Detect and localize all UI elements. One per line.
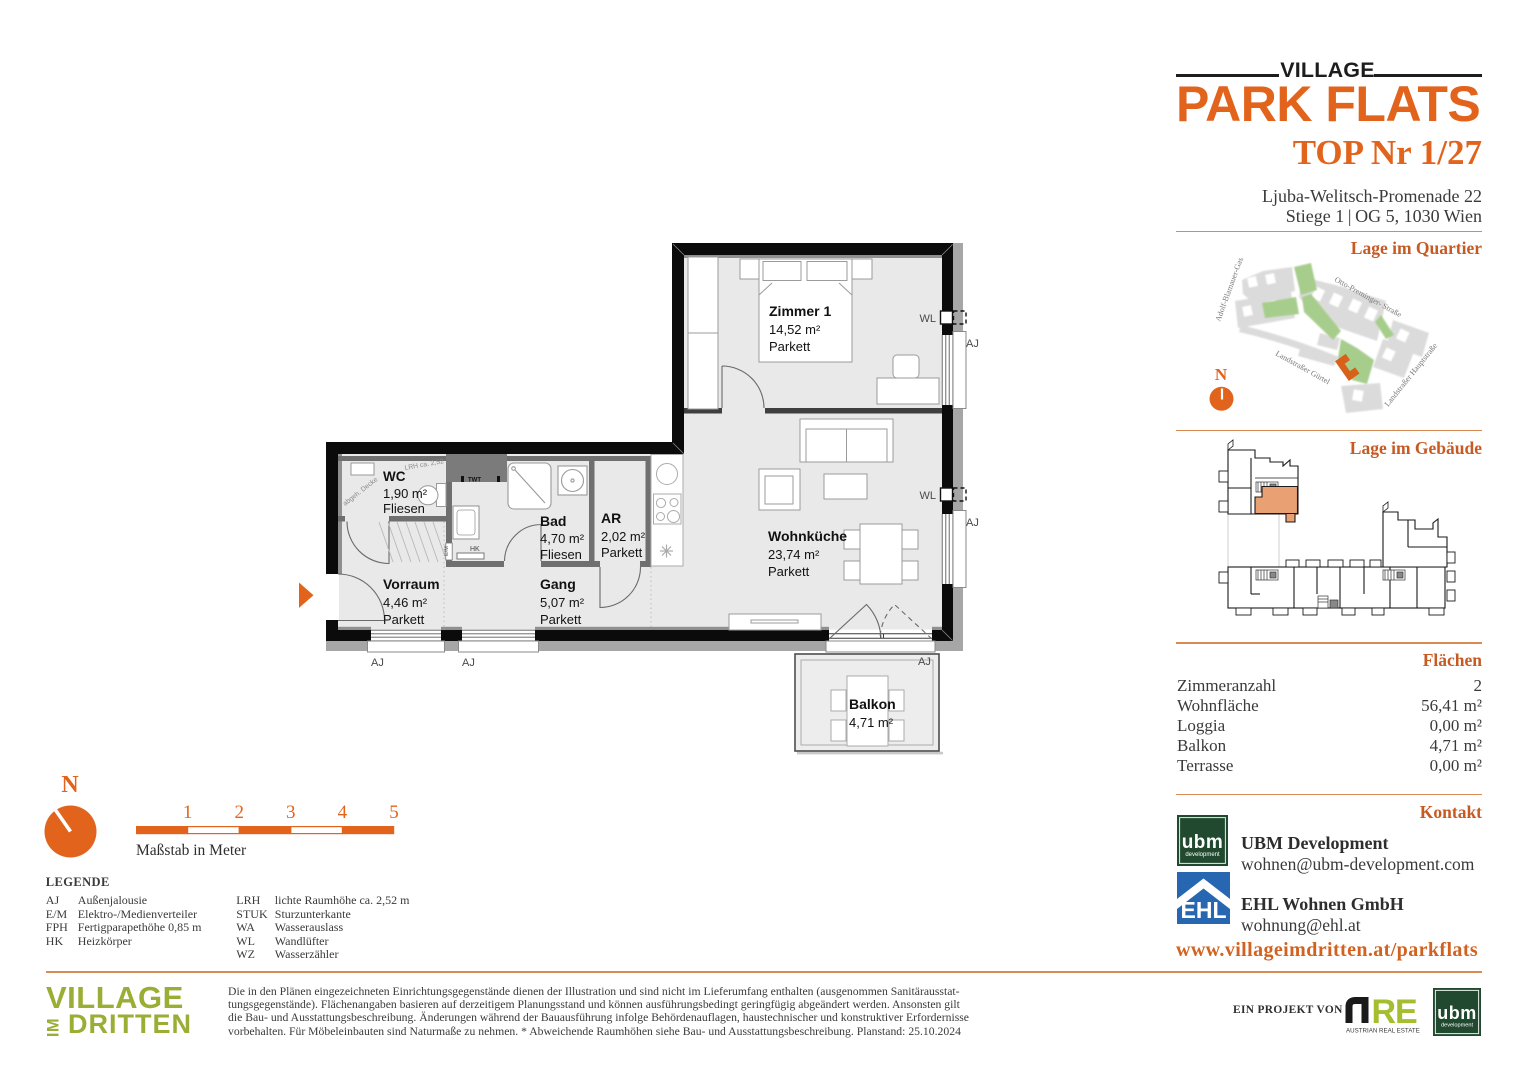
svg-text:ubm: ubm	[1437, 1003, 1477, 1023]
svg-text:AUSTRIAN REAL ESTATE: AUSTRIAN REAL ESTATE	[1346, 1028, 1420, 1035]
svg-text:Bad: Bad	[540, 513, 566, 529]
svg-text:4,71 m²: 4,71 m²	[849, 715, 894, 730]
svg-text:2,02 m²: 2,02 m²	[601, 529, 646, 544]
svg-text:AJ: AJ	[462, 657, 475, 669]
svg-text:development: development	[1441, 1023, 1473, 1029]
svg-text:3: 3	[286, 802, 296, 823]
svg-text:ubm: ubm	[1181, 832, 1223, 853]
svg-text:4,70 m²: 4,70 m²	[540, 531, 585, 546]
svg-text:WC: WC	[383, 469, 406, 484]
svg-text:E/M: E/M	[444, 546, 450, 556]
svg-text:Parkett: Parkett	[540, 612, 582, 627]
svg-text:4: 4	[338, 802, 348, 823]
svg-text:development: development	[1185, 852, 1220, 858]
svg-text:AJ: AJ	[918, 656, 931, 668]
svg-text:Parkett: Parkett	[601, 545, 643, 560]
svg-text:Zimmer 1: Zimmer 1	[769, 303, 831, 319]
svg-text:Balkon: Balkon	[849, 696, 896, 712]
svg-text:AJ: AJ	[371, 657, 384, 669]
svg-text:TWT: TWT	[468, 478, 481, 484]
svg-text:23,74 m²: 23,74 m²	[768, 547, 820, 562]
svg-text:Maßstab in Meter: Maßstab in Meter	[136, 842, 247, 859]
svg-text:2: 2	[234, 802, 244, 823]
svg-text:WL: WL	[920, 313, 937, 325]
svg-text:AJ: AJ	[966, 338, 979, 350]
svg-text:EHL: EHL	[1180, 897, 1226, 923]
svg-text:Wohnküche: Wohnküche	[768, 528, 847, 544]
svg-text:Gang: Gang	[540, 576, 576, 592]
svg-text:AJ: AJ	[966, 517, 979, 529]
svg-text:14,52 m²: 14,52 m²	[769, 322, 821, 337]
svg-text:1: 1	[183, 802, 193, 823]
svg-text:Parkett: Parkett	[383, 612, 425, 627]
svg-text:5: 5	[389, 802, 399, 823]
svg-text:N: N	[61, 772, 79, 798]
svg-text:Fliesen: Fliesen	[540, 547, 582, 562]
svg-text:Parkett: Parkett	[768, 564, 810, 579]
svg-text:HK: HK	[470, 546, 480, 553]
svg-text:Vorraum: Vorraum	[383, 576, 440, 592]
svg-text:1,90 m²: 1,90 m²	[383, 486, 428, 501]
svg-text:N: N	[1215, 365, 1228, 384]
svg-text:WL: WL	[920, 490, 937, 502]
svg-text:RE: RE	[1372, 993, 1418, 1031]
svg-text:5,07 m²: 5,07 m²	[540, 595, 585, 610]
svg-text:Parkett: Parkett	[769, 339, 811, 354]
svg-text:Fliesen: Fliesen	[383, 501, 425, 516]
svg-text:AR: AR	[601, 510, 621, 526]
svg-text:4,46 m²: 4,46 m²	[383, 595, 428, 610]
